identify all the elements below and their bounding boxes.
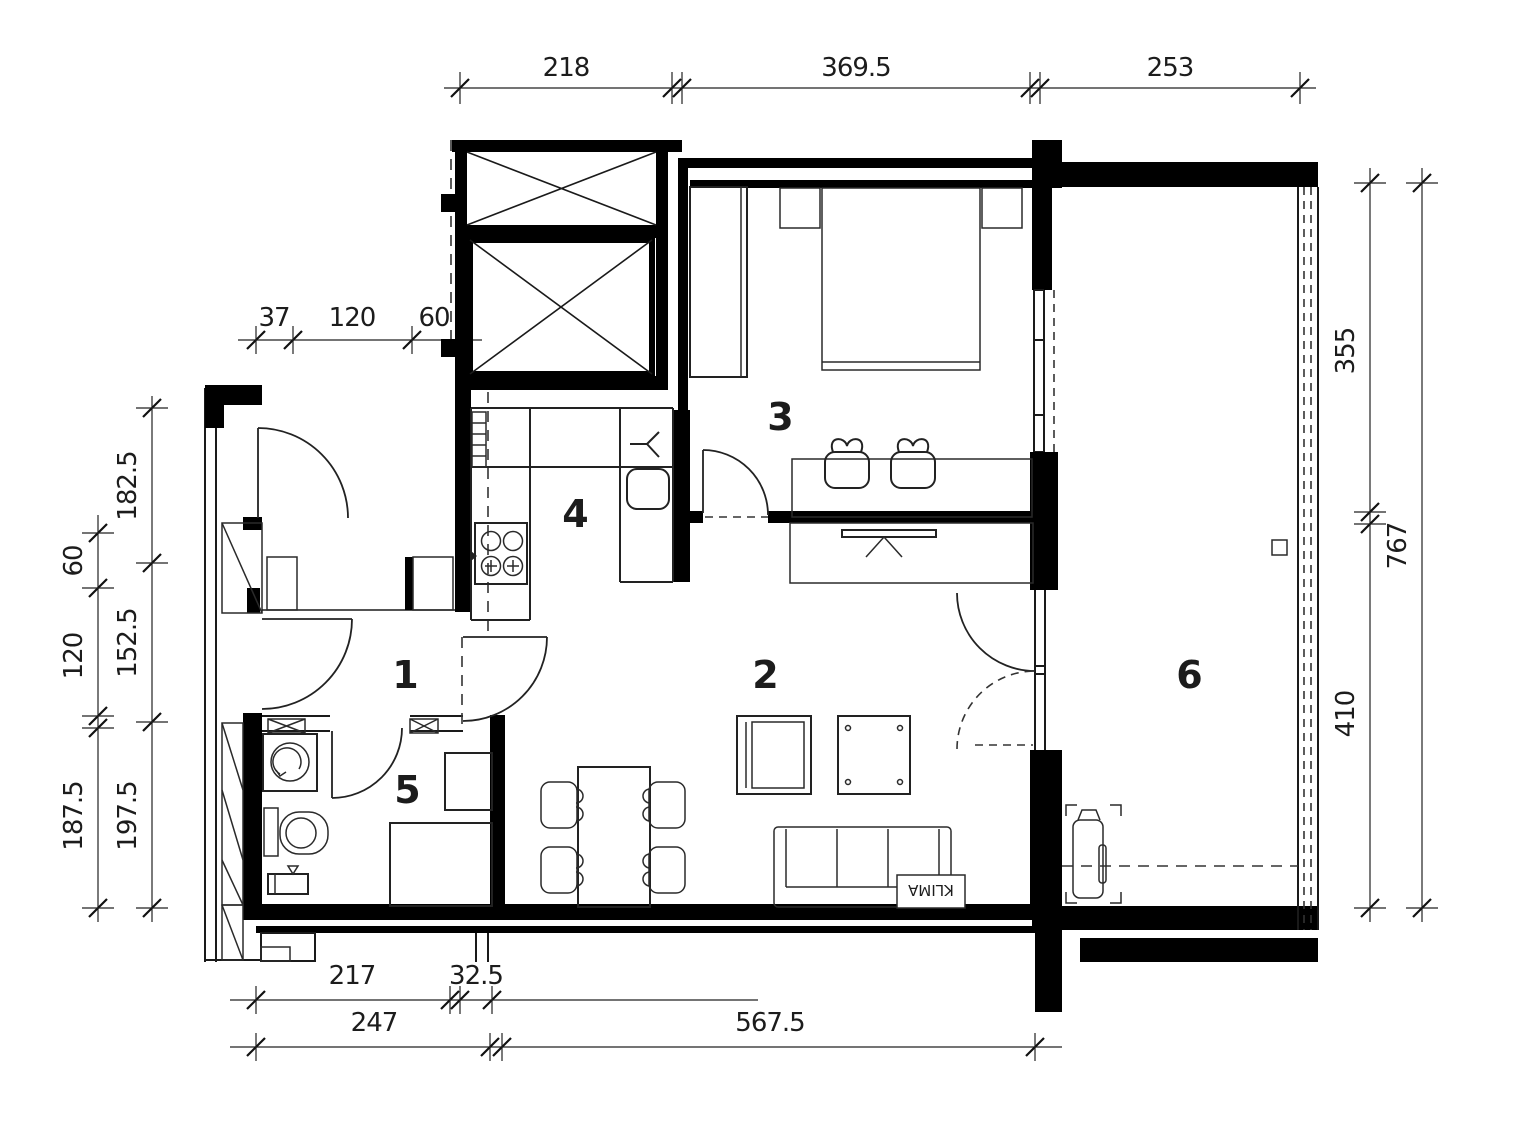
dim-bottom-567: 567.5 <box>735 1008 804 1038</box>
washing-machine <box>263 734 317 791</box>
room-label-5: 5 <box>394 768 421 812</box>
dim-entrance-37: 37 <box>258 303 289 333</box>
room-labels: 1 2 3 4 5 6 <box>392 395 1203 812</box>
entry-corner-wall <box>205 385 262 428</box>
entrance-door[interactable] <box>258 428 348 518</box>
room-label-1: 1 <box>392 653 419 697</box>
elevator-shaft <box>441 140 682 390</box>
dim-top-253: 253 <box>1147 53 1194 83</box>
drain-icon <box>1272 540 1287 555</box>
room-label-3: 3 <box>767 395 794 439</box>
dim-entrance-60: 60 <box>418 303 449 333</box>
dim-left-152: 152.5 <box>113 608 143 677</box>
dim-bottom-32: 32.5 <box>449 961 503 991</box>
dim-left-120: 120 <box>59 633 89 680</box>
floorplan-drawing: 218 369.5 253 37 120 60 182.5 152.5 197.… <box>0 0 1528 1126</box>
dim-entrance-120: 120 <box>329 303 376 333</box>
hall-left-door[interactable] <box>262 619 352 709</box>
coffee-table <box>838 716 910 794</box>
stove <box>471 523 527 584</box>
dim-top-369: 369.5 <box>821 53 890 83</box>
bathroom-sink <box>268 866 308 894</box>
bedroom-door[interactable] <box>703 450 768 515</box>
balcony-door[interactable] <box>957 590 1045 750</box>
bathroom-door[interactable] <box>332 728 402 798</box>
dim-left-60: 60 <box>59 545 89 576</box>
room-label-2: 2 <box>752 653 779 697</box>
dim-left-187: 187.5 <box>59 781 89 850</box>
terrace-railing <box>1298 187 1318 930</box>
wardrobe <box>690 187 747 377</box>
double-bed <box>780 188 1022 370</box>
dim-left-197: 197.5 <box>113 781 143 850</box>
ac-outdoor-unit <box>1066 805 1121 903</box>
elevator-cross <box>470 240 652 374</box>
dim-top-218: 218 <box>543 53 590 83</box>
terrace <box>1062 187 1318 930</box>
dining-set <box>541 767 685 907</box>
bedroom <box>690 187 1032 517</box>
klima-indoor-unit: KLIMA <box>897 875 965 908</box>
hall-cabinet-1 <box>267 557 297 610</box>
bedroom-window <box>1034 290 1054 452</box>
dim-bottom-247: 247 <box>351 1008 398 1038</box>
dim-right-355: 355 <box>1331 328 1361 375</box>
bath-cabinet <box>445 753 492 810</box>
room-label-4: 4 <box>562 492 589 536</box>
walls <box>205 140 1318 1012</box>
shaft-cross-top <box>467 152 656 225</box>
hall-living-door[interactable] <box>463 637 547 721</box>
room-label-6: 6 <box>1176 653 1203 697</box>
hall-cabinet-2 <box>413 557 453 610</box>
klima-label: KLIMA <box>907 881 954 899</box>
living-room: KLIMA <box>541 523 1033 908</box>
toilet <box>264 808 328 856</box>
armchair <box>737 716 811 794</box>
shower <box>390 823 492 906</box>
dim-bottom-217: 217 <box>329 961 376 991</box>
doors <box>258 428 768 798</box>
floorplan-page: 218 369.5 253 37 120 60 182.5 152.5 197.… <box>0 0 1528 1126</box>
bathroom <box>263 734 492 906</box>
dim-right-767: 767 <box>1383 523 1413 570</box>
dim-right-410: 410 <box>1331 691 1361 738</box>
dim-left-182: 182.5 <box>113 451 143 520</box>
vent-hood-icon <box>630 432 659 457</box>
kitchen-sink <box>627 469 669 509</box>
hallway <box>267 557 453 610</box>
tv-cabinet <box>790 523 1033 583</box>
shelf-strip <box>472 412 486 467</box>
